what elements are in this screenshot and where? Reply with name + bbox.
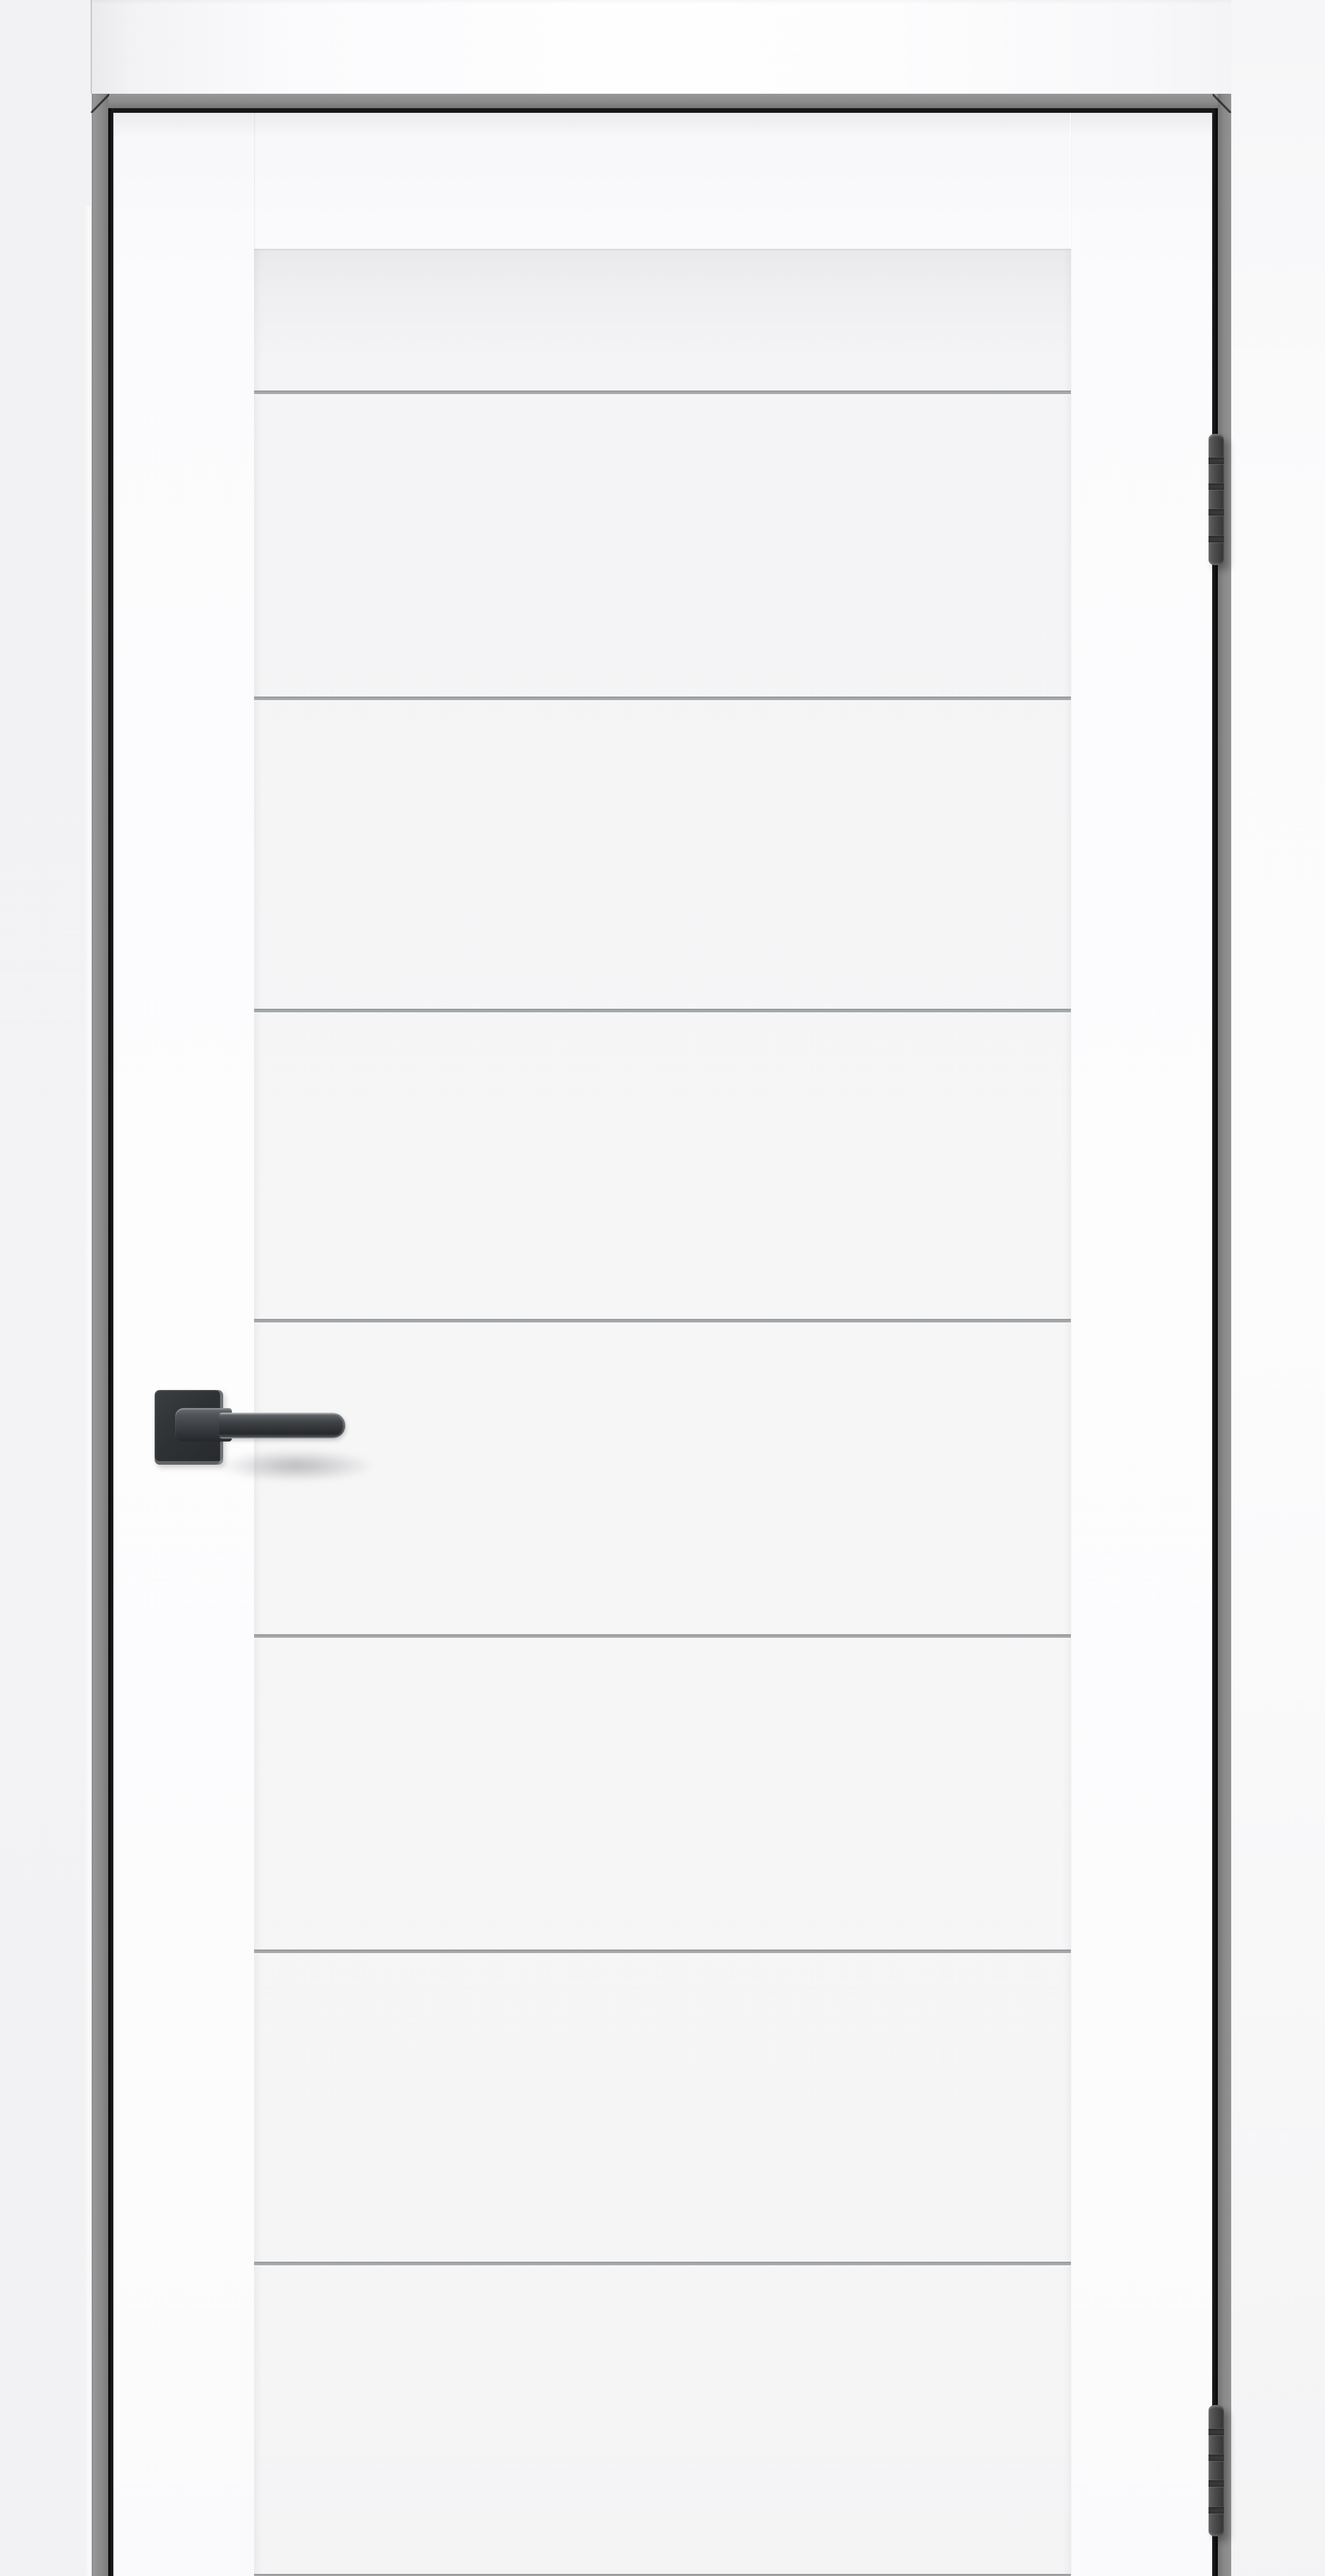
hinge-knuckle-band [1209,509,1224,516]
panel-groove-line [254,697,1071,702]
hinge-knuckle-band [1209,2480,1224,2487]
panel-groove-line [254,391,1071,396]
left-casing-edge-highlight [85,206,92,2576]
panel-groove-line [254,1009,1071,1014]
handle-shadow [219,1450,374,1481]
panel-groove-line [254,1319,1071,1324]
door-frame-header-casing [91,0,1231,94]
panel-groove-line [254,2262,1071,2267]
door-hinge-top [1209,434,1224,565]
door-hinge-bottom [1209,2405,1224,2536]
frame-reveal-top [92,94,1231,108]
hinge-knuckle-band [1209,536,1224,543]
wall-background-right [1231,0,1325,2576]
panel-groove-line [254,2574,1071,2576]
door-leaf [113,113,1212,2576]
frame-reveal-left [92,94,108,2576]
hinge-knuckle-band [1209,483,1224,490]
panel-groove-line [254,1950,1071,1955]
door-gap-top [108,108,1218,113]
panel-groove-line [254,1634,1071,1639]
hinge-knuckle-band [1209,2507,1224,2514]
wall-background-left [0,0,92,2576]
door-groove-panel [254,249,1071,2576]
hinge-knuckle-band [1209,457,1224,464]
door-product-photo [0,0,1325,2576]
hinge-knuckle-band [1209,2429,1224,2435]
handle-lever [219,1413,345,1438]
hinge-knuckle-band [1209,2454,1224,2461]
door-gap-left [108,108,113,2576]
